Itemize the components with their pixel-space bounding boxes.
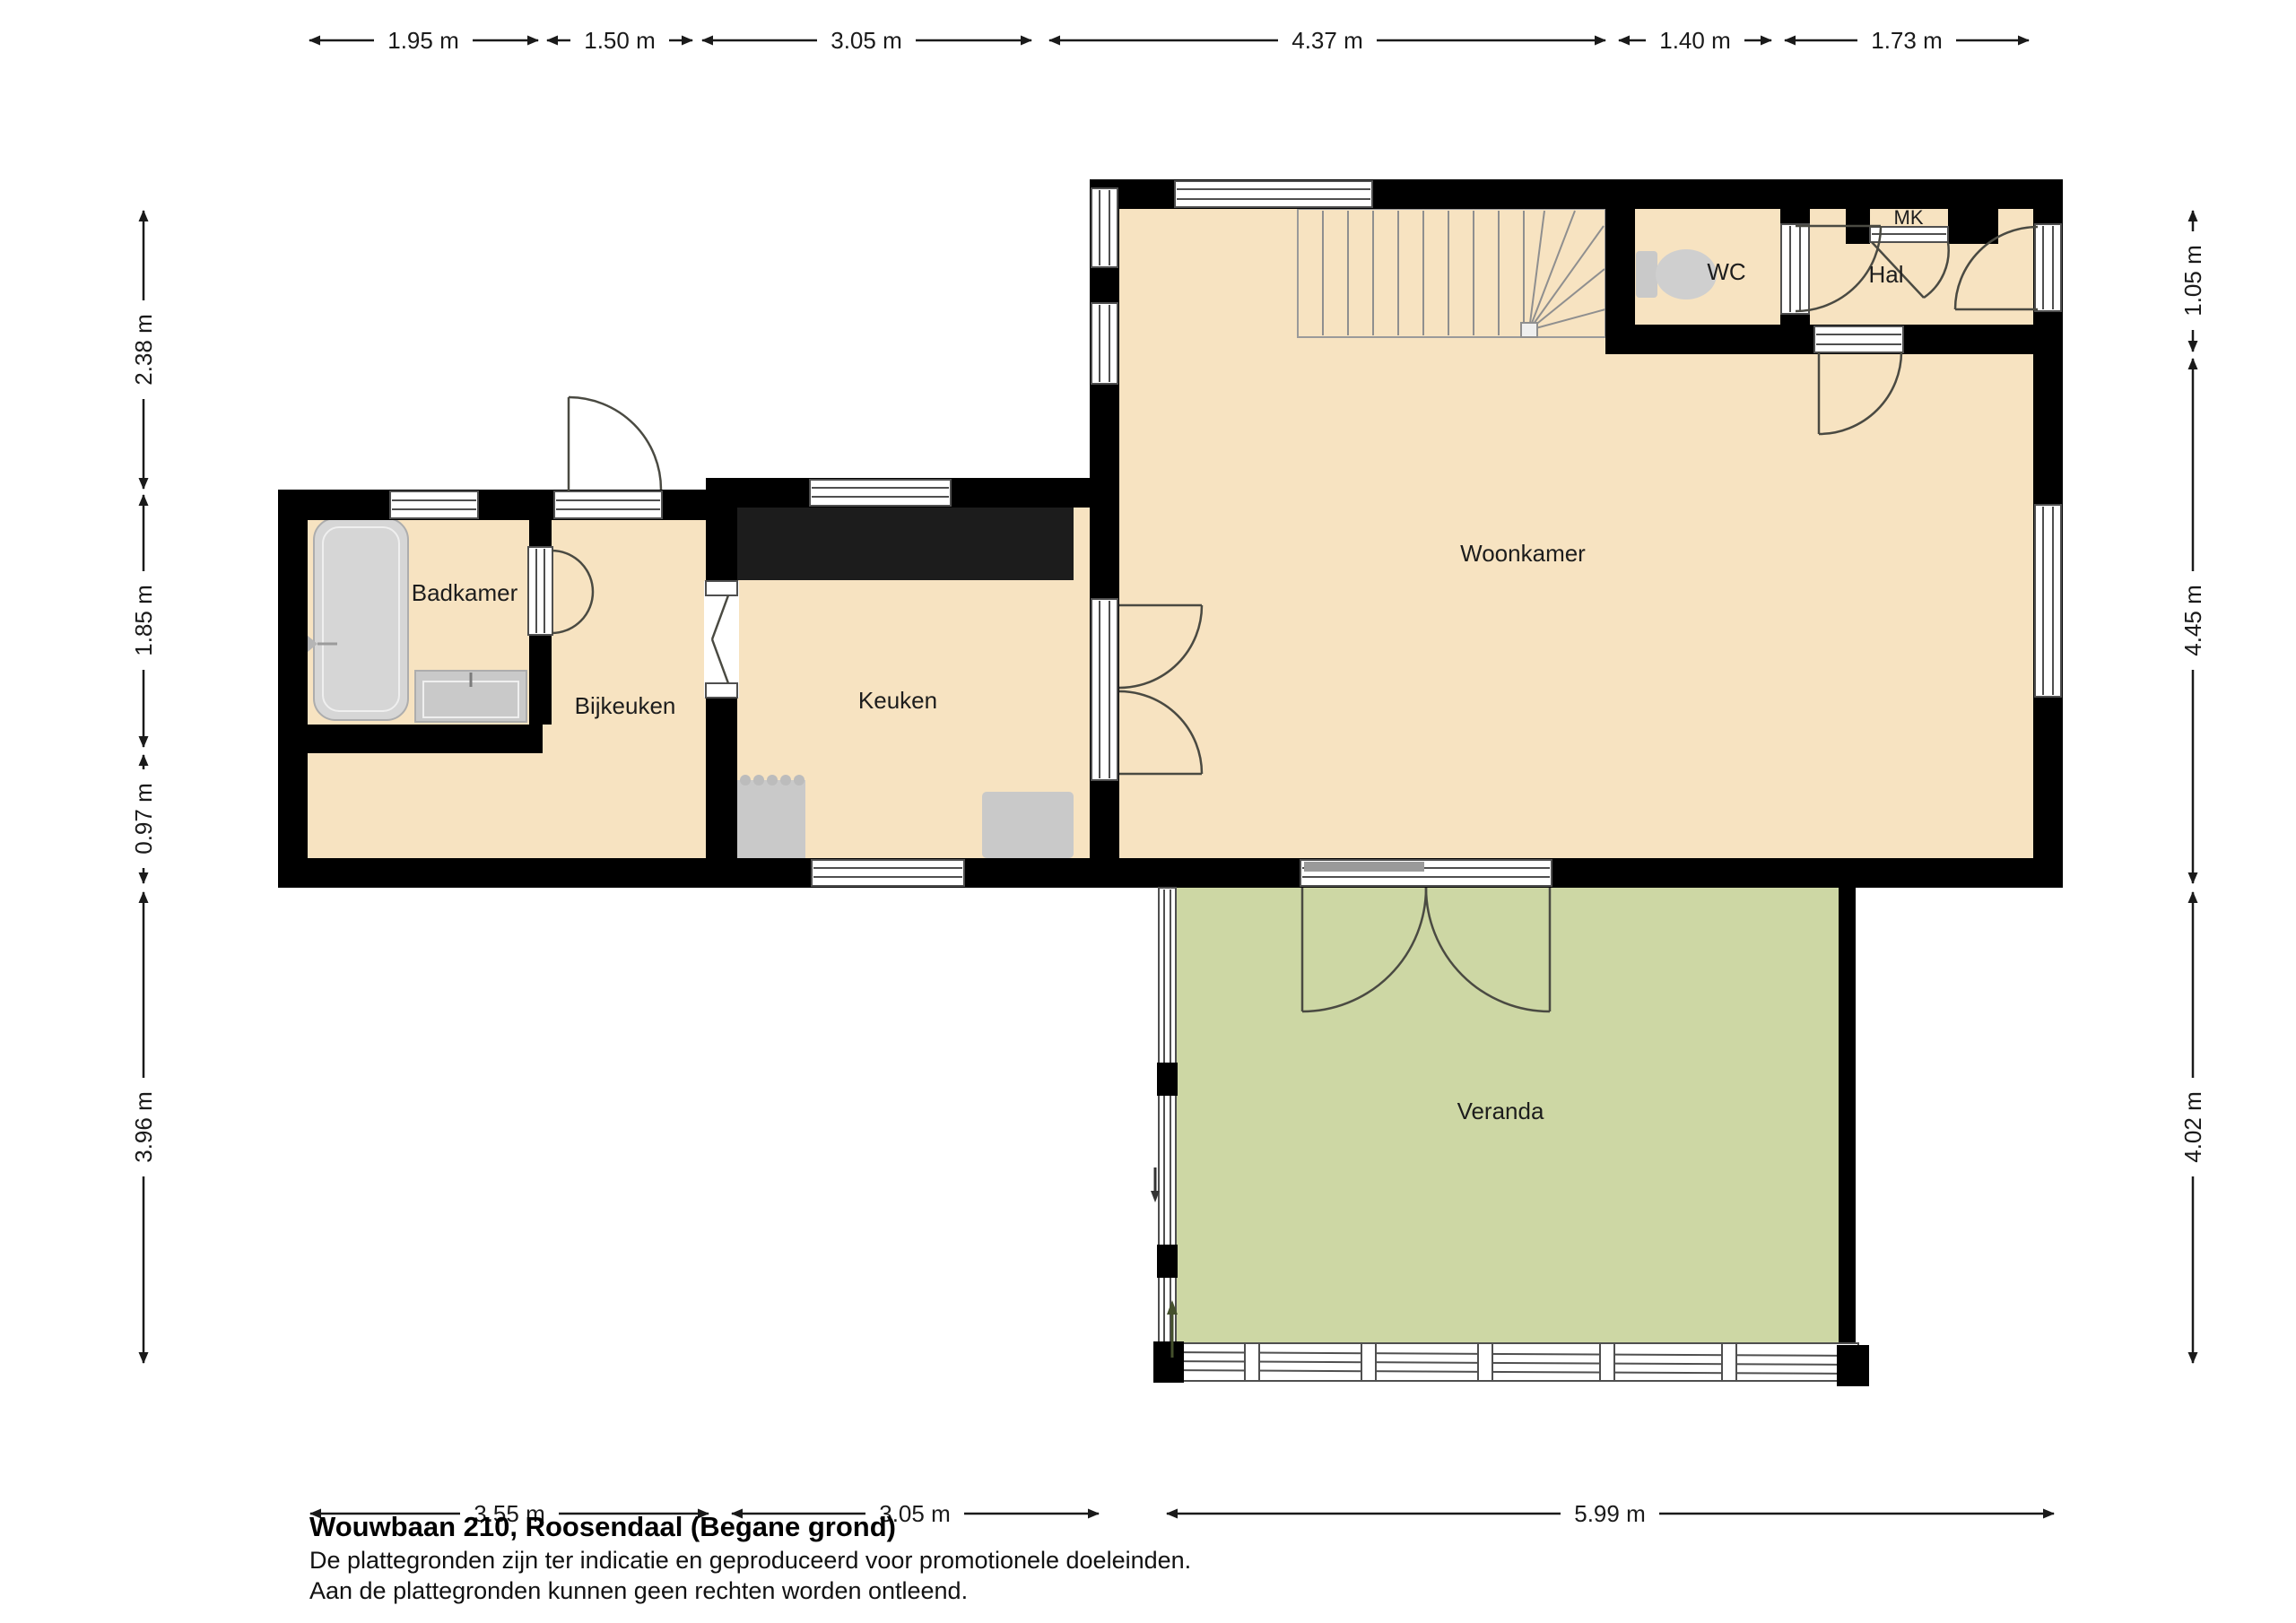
window bbox=[390, 491, 478, 518]
window bbox=[812, 860, 964, 886]
dim-top-5: 1.40 m bbox=[1619, 25, 1771, 56]
wall bbox=[278, 490, 735, 520]
footer-address-title: Wouwbaan 210, Roosendaal (Begane grond) bbox=[309, 1511, 896, 1542]
room-label-woonkamer: Woonkamer bbox=[1460, 540, 1586, 567]
svg-text:4.02 m: 4.02 m bbox=[2179, 1091, 2206, 1163]
wall bbox=[278, 490, 308, 888]
dim-left-4: 3.96 m bbox=[128, 892, 159, 1363]
dim-top-6: 1.73 m bbox=[1785, 25, 2029, 56]
wall bbox=[278, 858, 735, 888]
floor-plan: Badkamer Bijkeuken Keuken Woonkamer WC H… bbox=[0, 0, 2296, 1623]
dim-top-1: 1.95 m bbox=[309, 25, 538, 56]
veranda-glazing-band bbox=[1153, 1341, 1869, 1386]
svg-text:1.95 m: 1.95 m bbox=[387, 27, 459, 54]
wall-post bbox=[1153, 1341, 1184, 1383]
toilet bbox=[1636, 249, 1717, 299]
svg-text:4.37 m: 4.37 m bbox=[1291, 27, 1363, 54]
mullion bbox=[1245, 1343, 1259, 1381]
svg-text:0.97 m: 0.97 m bbox=[130, 783, 157, 855]
svg-text:4.45 m: 4.45 m bbox=[2179, 585, 2206, 656]
svg-text:3.96 m: 3.96 m bbox=[130, 1091, 157, 1163]
window bbox=[1091, 303, 1118, 384]
hal-door-frame bbox=[1814, 326, 1903, 352]
double-door-frame bbox=[1091, 599, 1118, 780]
bathtub bbox=[314, 518, 408, 720]
room-label-bijkeuken: Bijkeuken bbox=[575, 692, 676, 719]
wall-badkamer-bottom bbox=[278, 725, 543, 753]
svg-text:1.85 m: 1.85 m bbox=[130, 585, 157, 656]
door-leaf-bar bbox=[1304, 862, 1424, 872]
kitchen-appliance-left bbox=[737, 775, 805, 858]
stair-newel bbox=[1521, 323, 1537, 337]
dim-left-2: 1.85 m bbox=[128, 495, 159, 747]
room-woonkamer-floor bbox=[1119, 209, 2033, 858]
mullion bbox=[1361, 1343, 1376, 1381]
room-label-wc: WC bbox=[1707, 258, 1745, 285]
window bbox=[1175, 181, 1372, 207]
svg-text:1.05 m: 1.05 m bbox=[2179, 245, 2206, 317]
wall bbox=[1090, 858, 2063, 888]
room-label-mk: MK bbox=[1894, 206, 1924, 229]
room-label-keuken: Keuken bbox=[858, 687, 937, 714]
floor-plan-page: Badkamer Bijkeuken Keuken Woonkamer WC H… bbox=[0, 0, 2296, 1623]
door-arc bbox=[569, 397, 661, 490]
dim-right-2: 4.45 m bbox=[2178, 359, 2208, 883]
room-veranda-floor bbox=[1168, 888, 1840, 1363]
dim-top-2: 1.50 m bbox=[547, 25, 692, 56]
dim-top-4: 4.37 m bbox=[1049, 25, 1605, 56]
svg-text:1.50 m: 1.50 m bbox=[584, 27, 656, 54]
kitchen-appliance-right bbox=[982, 792, 1074, 858]
veranda-door-frame bbox=[1300, 860, 1552, 886]
dim-left-1: 2.38 m bbox=[128, 211, 159, 489]
footer-disclaimer-2: Aan de plattegronden kunnen geen rechten… bbox=[309, 1577, 968, 1604]
svg-text:3.05 m: 3.05 m bbox=[831, 27, 902, 54]
svg-text:1.73 m: 1.73 m bbox=[1871, 27, 1943, 54]
room-label-veranda: Veranda bbox=[1457, 1098, 1544, 1124]
dim-right-3: 4.02 m bbox=[2178, 892, 2208, 1363]
svg-text:2.38 m: 2.38 m bbox=[130, 314, 157, 386]
dim-top-3: 3.05 m bbox=[702, 25, 1031, 56]
badkamer-door-frame bbox=[528, 547, 552, 635]
wc-door-frame bbox=[1781, 224, 1809, 314]
exterior-door-frame bbox=[554, 491, 662, 518]
swing-door bbox=[704, 581, 739, 698]
mullion bbox=[1722, 1343, 1736, 1381]
room-label-badkamer: Badkamer bbox=[412, 579, 518, 606]
window bbox=[1091, 188, 1118, 267]
front-door-frame bbox=[2035, 224, 2061, 311]
mullion bbox=[1478, 1343, 1492, 1381]
svg-text:1.40 m: 1.40 m bbox=[1659, 27, 1731, 54]
footer-disclaimer-1: De plattegronden zijn ter indicatie en g… bbox=[309, 1547, 1191, 1574]
sink-vanity bbox=[415, 671, 526, 722]
wall-post bbox=[1837, 1345, 1869, 1386]
room-label-hal: Hal bbox=[1868, 261, 1903, 288]
mullion bbox=[1600, 1343, 1614, 1381]
footer: Wouwbaan 210, Roosendaal (Begane grond) … bbox=[309, 1511, 1191, 1604]
window bbox=[810, 480, 951, 506]
wall bbox=[706, 478, 737, 520]
window bbox=[2035, 505, 2061, 697]
dim-right-1: 1.05 m bbox=[2178, 211, 2208, 352]
veranda-left-wall bbox=[1157, 888, 1178, 1379]
wall-veranda-right bbox=[1839, 888, 1856, 1363]
wall-post bbox=[1157, 1245, 1178, 1278]
wall-mk-right bbox=[1948, 209, 1998, 244]
dim-bottom-3: 5.99 m bbox=[1167, 1498, 2054, 1529]
svg-text:5.99 m: 5.99 m bbox=[1574, 1500, 1646, 1527]
wall-post bbox=[1157, 1063, 1178, 1096]
kitchen-counter bbox=[737, 508, 1074, 580]
dim-left-3: 0.97 m bbox=[128, 755, 159, 883]
